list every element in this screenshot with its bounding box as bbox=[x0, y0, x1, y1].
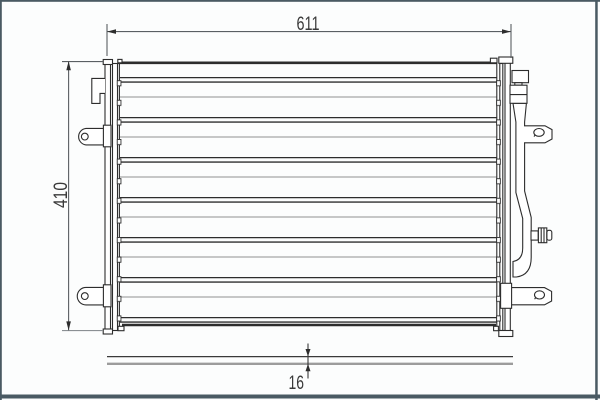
upper-pipe-fitting bbox=[512, 71, 529, 83]
left-plate-bottom-cap bbox=[103, 329, 112, 334]
width-dimension-label: 611 bbox=[297, 13, 320, 35]
lower-right-bracket-block bbox=[501, 283, 512, 308]
valve-stem bbox=[531, 231, 538, 240]
upper-left-tab-block bbox=[103, 125, 111, 147]
core-bottom-left-tab bbox=[118, 326, 124, 330]
upper-left-tab-hole bbox=[81, 133, 88, 140]
left-plate-top-cap bbox=[103, 60, 112, 65]
frame-left bbox=[0, 0, 2, 400]
depth-dimension-label: 16 bbox=[289, 372, 305, 394]
core-bottom-right-tab bbox=[494, 326, 499, 330]
condenser-body bbox=[103, 57, 513, 337]
core-fins bbox=[120, 64, 497, 324]
valve-cap bbox=[547, 230, 552, 240]
frame-bottom bbox=[0, 395, 600, 399]
core-top-right-tab bbox=[490, 58, 497, 63]
technical-drawing-canvas: 611 410 16 bbox=[0, 0, 600, 400]
upper-right-mounting-bracket bbox=[524, 126, 552, 143]
height-dimension-label: 410 bbox=[50, 182, 72, 208]
lower-left-mounting-tab bbox=[77, 285, 111, 307]
left-header-tank bbox=[113, 64, 118, 331]
core-top-left-tab bbox=[118, 59, 122, 62]
frame-top bbox=[0, 0, 600, 2]
left-tube-notches bbox=[117, 78, 122, 325]
lower-left-tab-hole bbox=[81, 293, 88, 300]
frame-right bbox=[595, 0, 598, 400]
lower-left-tab-block bbox=[103, 285, 111, 307]
valve-nut bbox=[538, 228, 546, 243]
right-plate-bottom-cap bbox=[499, 331, 513, 337]
